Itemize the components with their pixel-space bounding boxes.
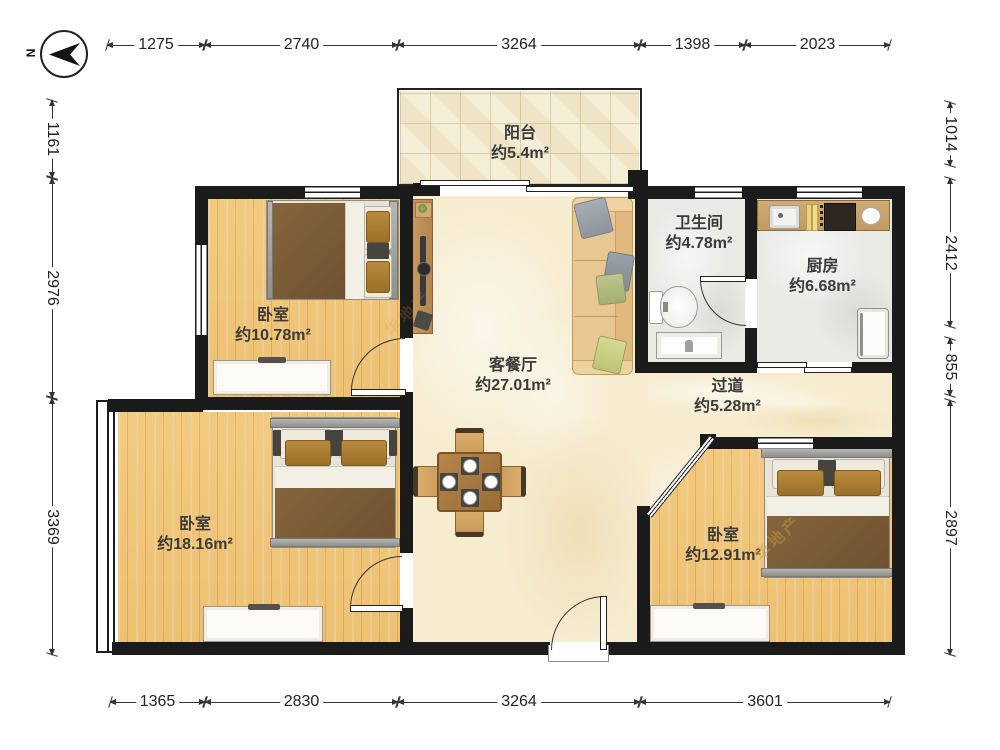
room-label-bedroom1: 卧室 约10.78m² [200,306,346,346]
sliding-door-panel [526,186,634,192]
dimension-value: 2023 [796,36,840,54]
room-area: 约4.78m² [640,234,758,254]
sofa-pillow-green [595,272,626,305]
bay-window [96,400,115,653]
bed-blanket [275,488,395,540]
dimension-right-2: 2412 [943,178,957,327]
plate [484,475,498,489]
dimension-value: 2830 [280,693,324,711]
room-label-living: 客餐厅 约27.01m² [440,356,586,396]
door-leaf [700,276,746,282]
compass-arrow-icon [49,43,80,66]
dimension-top-1: 1275 [107,38,205,52]
bed-pillow-brown [777,470,824,496]
bed-headboard [761,448,895,458]
dimension-bottom-1: 1365 [110,695,205,709]
faucet-icon [685,340,693,352]
dresser-handle [693,603,725,609]
fridge-handle [860,313,863,356]
bed-headboard [270,418,400,428]
wall [195,186,413,199]
bed-footboard [761,568,895,577]
stove-icon [824,203,856,231]
dresser-handle [248,604,280,610]
dimension-value: 3264 [497,693,541,711]
dimension-value: 1365 [136,693,180,711]
fridge [857,308,889,359]
door-leaf [600,596,607,650]
dimension-right-3: 855 [943,338,957,396]
wall [112,642,550,655]
pillow-accent [273,430,281,456]
tv-mount [417,262,431,276]
dimension-value: 1275 [134,36,178,54]
dimension-right-4: 2897 [943,400,957,655]
room-name: 卧室 [200,306,346,326]
dimension-bottom-2: 2830 [205,695,398,709]
plate [442,475,456,489]
dresser [650,605,770,642]
bed-double [266,200,399,300]
pillow-accent [389,430,397,456]
room-name: 阳台 [455,124,585,144]
wall [400,392,413,553]
plate [463,459,477,473]
wall [852,362,905,373]
room-name: 卫生间 [640,214,758,234]
wall [108,399,203,412]
stove-knob [820,217,823,220]
room-label-kitchen: 厨房 约6.68m² [760,257,885,297]
sliding-door-panel [757,362,807,368]
dimension-value: 2897 [941,507,959,549]
kitchen-counter [757,200,890,231]
window [758,437,813,449]
room-name: 厨房 [760,257,885,277]
dimension-value: 2740 [280,36,324,54]
bed-footboard [270,538,400,547]
bed-pillow-brown [366,261,390,293]
door-leaf [350,605,403,612]
plant-icon [418,204,427,213]
dining-chair [455,508,484,537]
dimension-value: 1398 [671,36,715,54]
dimension-left-1: 1161 [45,100,59,178]
stove-knob [820,223,823,226]
wall [607,642,905,655]
room-area: 约6.68m² [760,277,885,297]
sliding-door-panel [420,180,530,186]
room-label-bedroom2: 卧室 约18.16m² [122,515,268,555]
bed-sheet [345,203,365,299]
stove-knob [820,205,823,208]
bed-pillow-brown [285,440,331,466]
room-name: 卧室 [122,515,268,535]
dimension-top-4: 1398 [640,38,745,52]
bed-sheet [275,466,395,490]
pillow-accent [367,243,389,259]
room-label-bathroom: 卫生间 约4.78m² [640,214,758,254]
sink-icon [769,205,800,229]
dimension-value: 2976 [43,267,61,309]
dresser [203,606,323,642]
wall [628,186,905,199]
bay-window-mullion [107,402,109,651]
sliding-door-panel [804,367,852,373]
dimension-top-3: 3264 [398,38,640,52]
dresser-handle [258,357,286,363]
room-area: 约5.28m² [660,397,795,417]
compass-north-label: N [23,49,37,58]
sofa-seam [575,316,617,317]
window [305,186,360,199]
bed-pillow-brown [341,440,387,466]
dish-icon [861,207,881,225]
dimension-right-1: 1014 [943,102,957,166]
dimension-value: 3601 [743,693,787,711]
door-leaf [351,389,406,396]
cutting-board [812,204,818,231]
wall [637,506,650,655]
dimension-left-3: 3369 [45,398,59,655]
window [797,186,862,199]
room-area: 约18.16m² [122,535,268,555]
room-name: 过道 [660,377,795,397]
room-label-hallway: 过道 约5.28m² [660,377,795,417]
wall [195,397,413,410]
toilet-flush [663,302,668,312]
dimension-bottom-4: 3601 [640,695,890,709]
room-area: 约10.78m² [200,326,346,346]
dimension-left-2: 2976 [45,178,59,398]
room-name: 客餐厅 [440,356,586,376]
dimension-value: 2412 [941,232,959,274]
compass [40,30,88,78]
dimension-value: 1161 [43,119,61,159]
sink-drain [778,213,783,218]
dresser [213,360,331,395]
bed-pillow-brown [834,470,881,496]
wall [892,186,905,655]
floor-plan: 阳台 约5.4m² 卧室 约10.78m² 客餐厅 约27.01m² 卫生间 约… [0,0,1000,750]
dimension-bottom-3: 3264 [398,695,640,709]
stove-knob [820,211,823,214]
dimension-value: 3369 [43,506,61,548]
room-label-balcony: 阳台 约5.4m² [455,124,585,164]
bed-blanket [273,203,345,299]
window [695,186,742,199]
room-area: 约27.01m² [440,376,586,396]
room-area: 约5.4m² [455,144,585,164]
dimension-value: 3264 [497,36,541,54]
dimension-top-5: 2023 [745,38,890,52]
plate [463,491,477,505]
dimension-top-2: 2740 [205,38,398,52]
bed-pillow-brown [366,211,390,243]
bed-double [272,417,396,548]
dimension-value: 1014 [941,113,959,155]
wall [635,362,757,373]
dimension-value: 855 [941,351,959,384]
